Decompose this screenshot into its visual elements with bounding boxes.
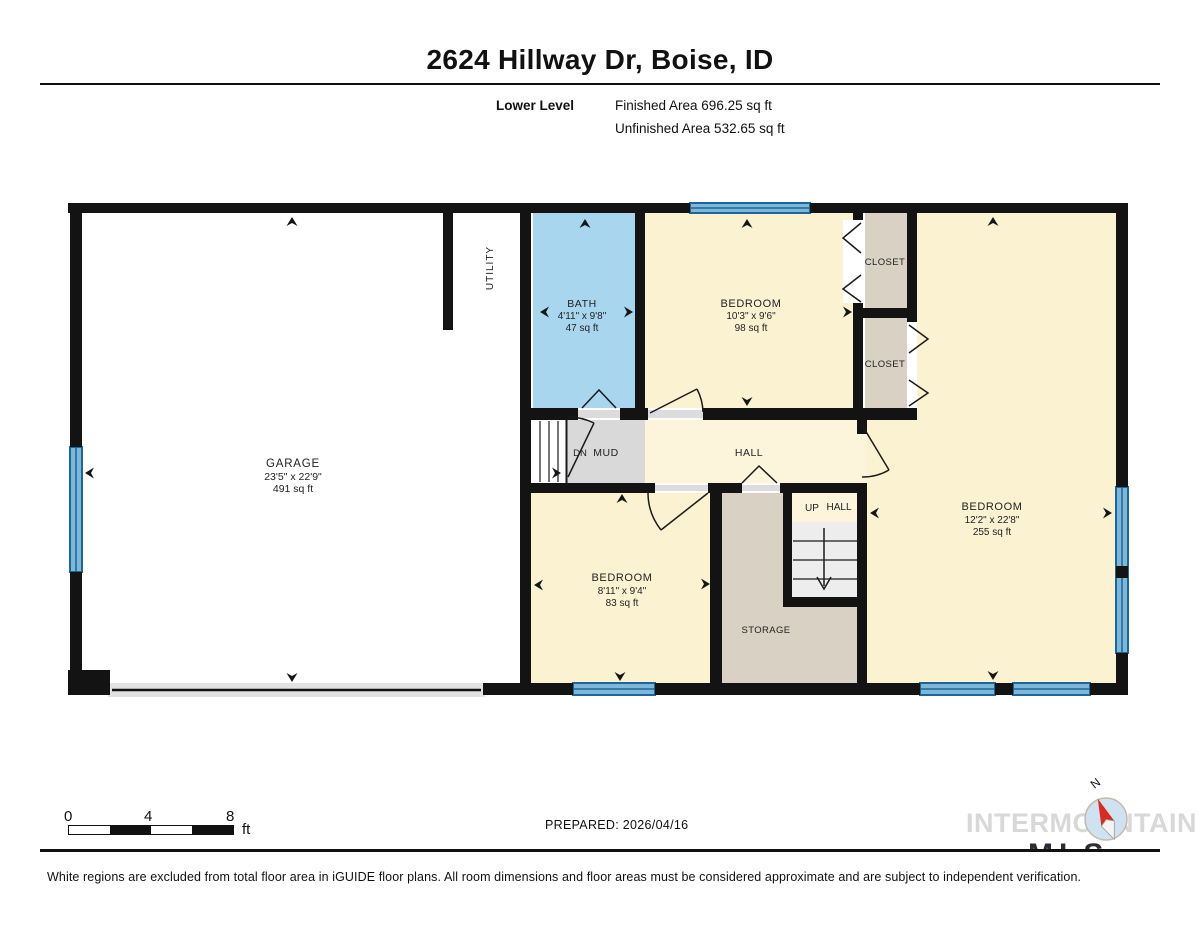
bedroom-right-area: 255 sq ft: [973, 527, 1012, 538]
scale-tick-8: 8: [226, 808, 234, 825]
mud-label: MUD: [593, 447, 618, 459]
bedroom-right-label: BEDROOM: [961, 501, 1022, 513]
window-top: [690, 203, 810, 213]
scale-seg: [69, 826, 110, 834]
bedroom-bottom-label: BEDROOM: [591, 572, 652, 584]
dn-label: DN: [573, 448, 587, 459]
prepared-date: PREPARED: 2026/04/16: [545, 818, 688, 832]
closet-bottom-door-gap: [907, 322, 917, 408]
bedroom-top-area: 98 sq ft: [735, 323, 768, 334]
bath-dims: 4'11" x 9'8": [558, 311, 607, 322]
hall-door-gap: [857, 432, 867, 483]
threshold: [742, 485, 780, 491]
footer-divider: [40, 849, 1160, 852]
utility-label: UTILITY: [485, 246, 496, 290]
garage-label: GARAGE: [266, 458, 320, 470]
closet-bottom-label: CLOSET: [865, 359, 905, 370]
garage-dims: 23'5" x 22'9": [264, 471, 322, 483]
bedroom-right-room-ext: [867, 420, 917, 683]
bath-label: BATH: [567, 298, 597, 310]
up-label: UP: [805, 503, 819, 514]
window-bottom-bedroom: [573, 683, 655, 695]
scale-seg: [151, 826, 192, 834]
compass-north-label: N: [1088, 776, 1103, 792]
closet-top-label: CLOSET: [865, 257, 905, 268]
storage-label: STORAGE: [741, 625, 790, 636]
garage-room: [82, 213, 520, 683]
bedroom-right-room: [917, 213, 1116, 683]
disclaimer-text: White regions are excluded from total fl…: [47, 870, 1081, 884]
bedroom-bottom-dims: 8'11" x 9'4": [598, 586, 647, 597]
up-hall-label: HALL: [826, 502, 851, 513]
garage-area: 491 sq ft: [273, 483, 313, 495]
floor-plan-page: 2624 Hillway Dr, Boise, ID Lower Level F…: [0, 0, 1200, 927]
scale-seg: [192, 826, 233, 834]
window-bottom-right-a: [920, 683, 995, 695]
bedroom-right-dims: 12'2" x 22'8": [965, 515, 1020, 526]
threshold: [655, 485, 708, 491]
scale-bar: [68, 825, 234, 835]
threshold: [648, 410, 703, 418]
scale-seg: [110, 826, 151, 834]
threshold: [578, 410, 620, 418]
window-left: [70, 447, 82, 572]
bedroom-bottom-area: 83 sq ft: [606, 598, 639, 609]
bedroom-top-dims: 10'3" x 9'6": [726, 311, 776, 322]
bedroom-top-label: BEDROOM: [720, 298, 781, 310]
scale-tick-0: 0: [64, 808, 72, 825]
scale-tick-4: 4: [144, 808, 152, 825]
scale-unit: ft: [242, 821, 250, 838]
compass: N: [1078, 776, 1138, 848]
floor-plan-drawing: GARAGE 23'5" x 22'9" 491 sq ft UTILITY B…: [0, 0, 1200, 927]
garage-door: [108, 683, 485, 697]
hall-label: HALL: [735, 447, 763, 459]
window-bottom-right-b: [1013, 683, 1090, 695]
bath-area: 47 sq ft: [566, 323, 599, 334]
